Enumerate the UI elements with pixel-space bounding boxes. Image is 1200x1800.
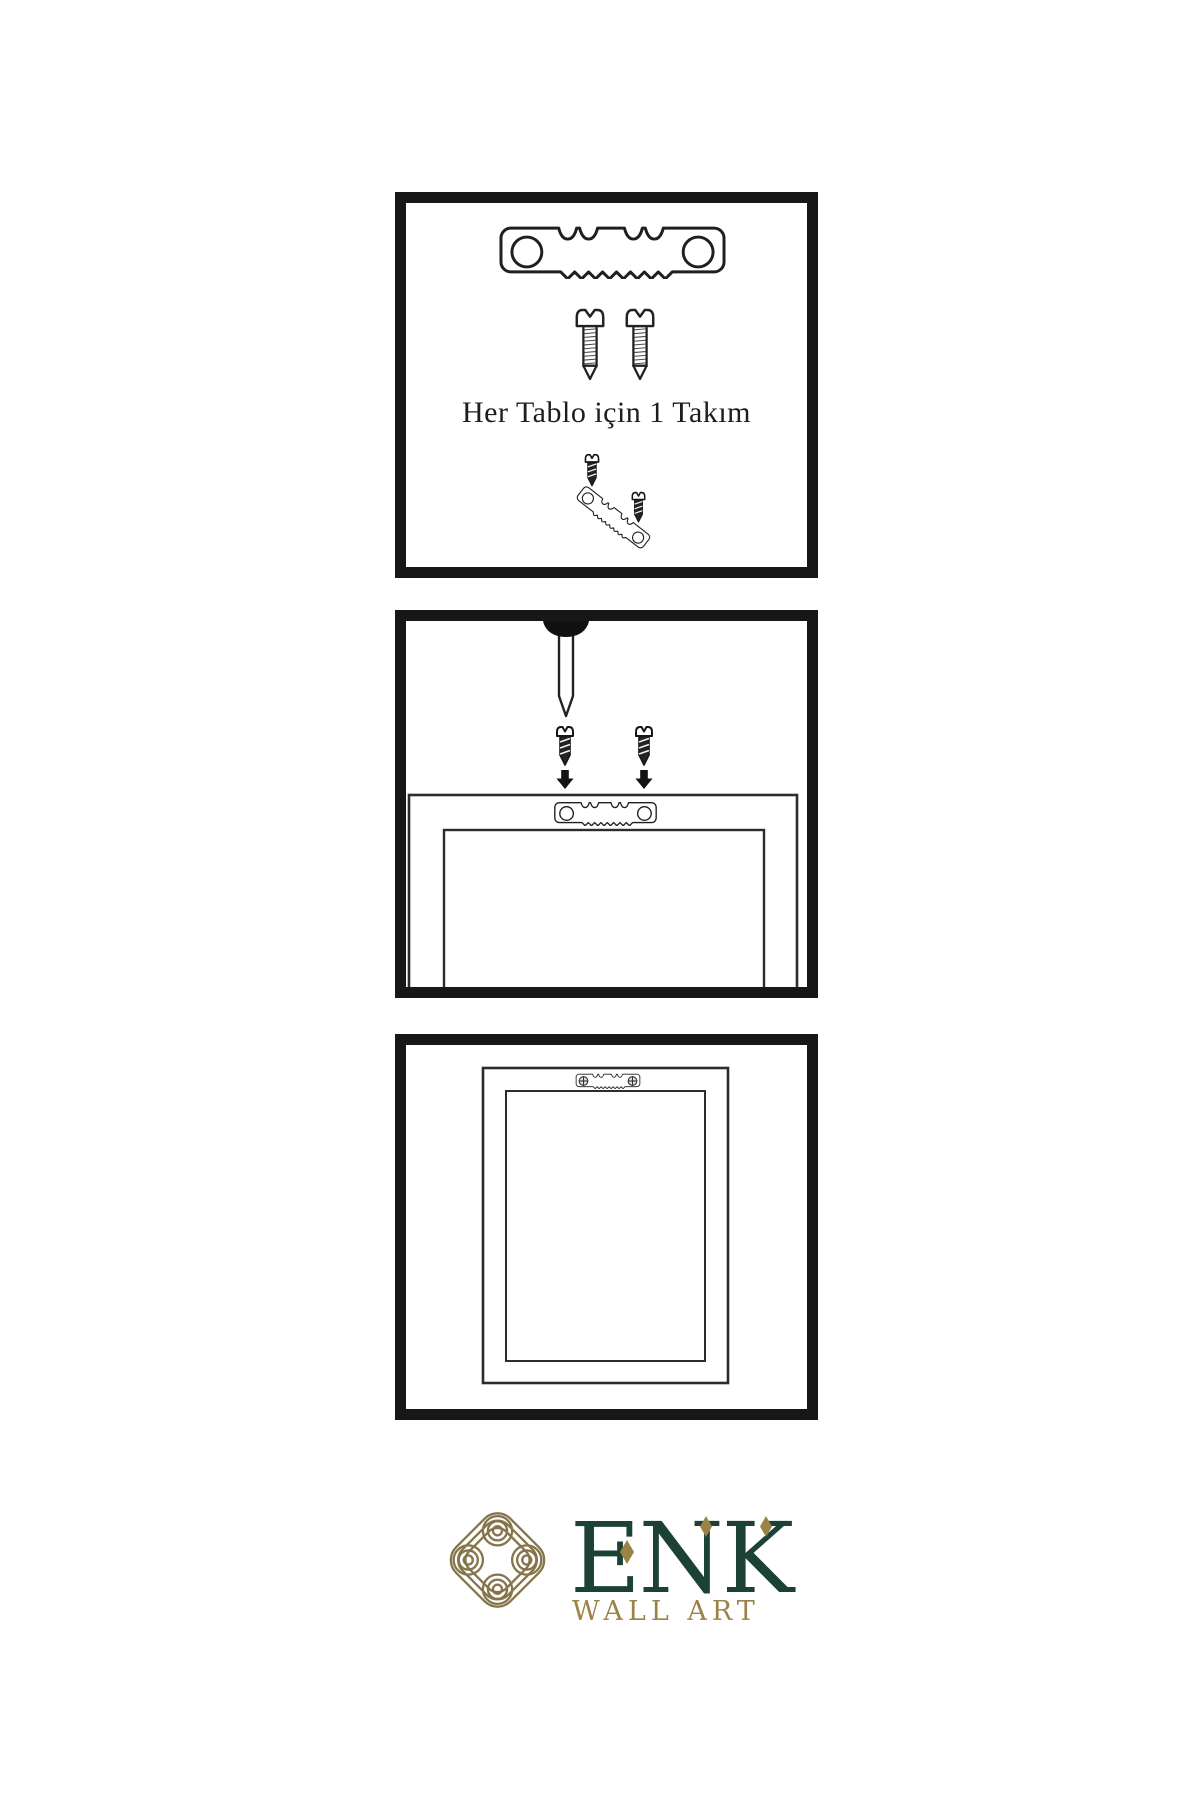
frame-inner-outline: [444, 830, 764, 987]
sawtooth-hanger-icon: [501, 228, 724, 279]
down-arrow-icon: [635, 770, 652, 789]
panel-step-2-mounting: [395, 610, 818, 998]
hung-frame-diagram: [406, 1045, 807, 1409]
instruction-sheet: { "meta": { "type": "wall-art-hanging-in…: [0, 0, 1200, 1800]
panel-step-1-hardware-kit: Her Tablo için 1 Takım: [395, 192, 818, 578]
screw-head-icon: [579, 1077, 588, 1086]
screw-icon: [577, 310, 603, 379]
brand-name: ENK: [570, 1514, 792, 1604]
panel-step-3-hung-frame: [395, 1034, 818, 1420]
mounting-diagram: [406, 621, 807, 987]
dark-screw-icon: [632, 493, 644, 522]
hardware-kit-diagram: [406, 203, 807, 567]
dark-screw-icon: [636, 727, 652, 765]
screw-icon: [627, 310, 653, 379]
brand-tagline: WALL ART: [572, 1596, 760, 1627]
brand-logo: ENK WALL ART: [437, 1497, 797, 1637]
dark-screw-icon: [585, 455, 598, 486]
knot-logo-icon: [437, 1497, 558, 1623]
kit-caption: Her Tablo için 1 Takım: [406, 396, 807, 430]
down-arrow-icon: [556, 770, 573, 789]
screw-head-icon: [628, 1077, 637, 1086]
frame-inner-outline: [506, 1091, 705, 1361]
nail-icon: [543, 621, 589, 716]
dark-screw-icon: [557, 727, 573, 765]
sawtooth-hanger-icon: [555, 803, 656, 826]
